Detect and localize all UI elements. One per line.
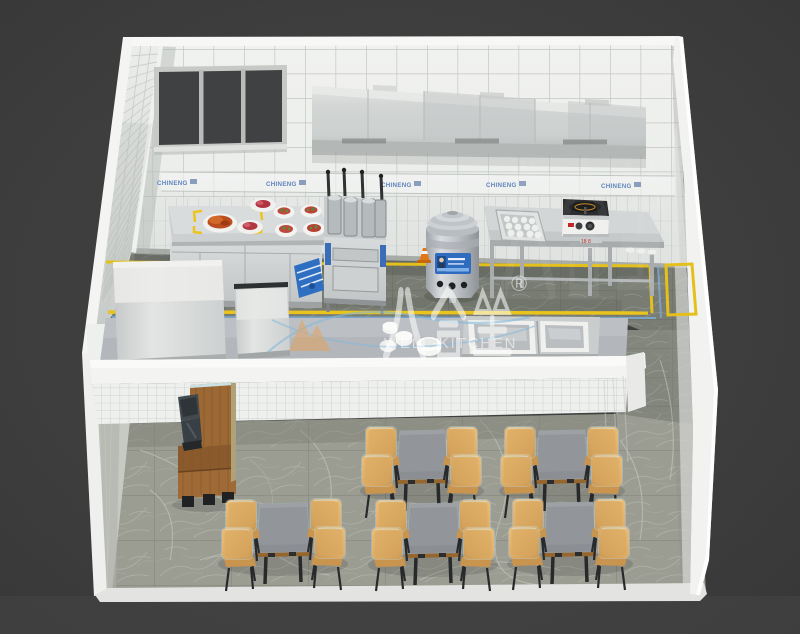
svg-text:CHINENG: CHINENG [381,182,412,189]
svg-text:CHINENG: CHINENG [266,181,297,188]
svg-text:CHINENG: CHINENG [486,182,517,189]
svg-text:®: ® [511,271,527,296]
svg-text:CHINENG: CHINENG [157,180,188,187]
svg-text:WELL-KITCHEN: WELL-KITCHEN [384,335,517,352]
